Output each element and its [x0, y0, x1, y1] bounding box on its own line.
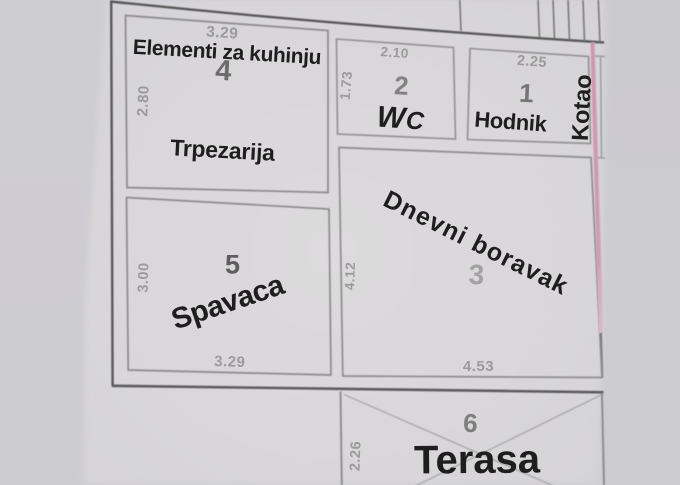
svg-text:Terasa: Terasa — [414, 437, 541, 482]
svg-text:2: 2 — [393, 70, 409, 101]
svg-text:Trpezarija: Trpezarija — [170, 134, 276, 165]
svg-text:2.80: 2.80 — [134, 85, 153, 117]
svg-text:3: 3 — [468, 259, 485, 291]
svg-text:3.29: 3.29 — [206, 23, 239, 42]
svg-text:1.73: 1.73 — [337, 70, 355, 101]
svg-text:1: 1 — [518, 78, 534, 109]
svg-text:5: 5 — [225, 250, 240, 280]
svg-text:6: 6 — [463, 408, 479, 438]
svg-text:Hodnik: Hodnik — [474, 107, 549, 137]
svg-text:Kotao: Kotao — [567, 74, 596, 142]
svg-text:3.00: 3.00 — [135, 262, 152, 293]
svg-text:4.12: 4.12 — [342, 262, 358, 291]
svg-text:2.25: 2.25 — [516, 53, 547, 71]
svg-text:4: 4 — [215, 55, 233, 88]
svg-text:2.26: 2.26 — [347, 441, 364, 472]
svg-text:4.53: 4.53 — [463, 358, 494, 375]
svg-text:2.10: 2.10 — [380, 44, 409, 61]
svg-text:3.29: 3.29 — [214, 353, 246, 371]
